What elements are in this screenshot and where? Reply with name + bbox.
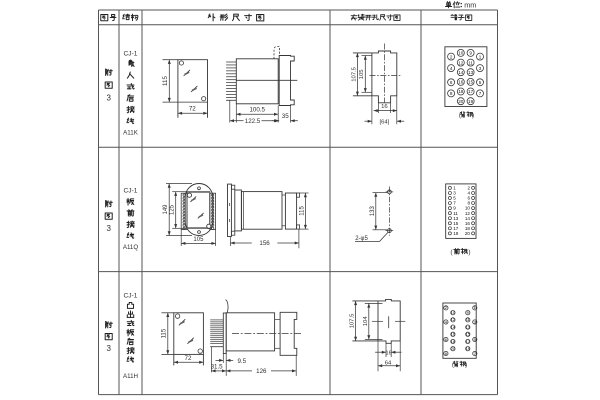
svg-text:19: 19 (453, 231, 459, 236)
svg-text:9: 9 (469, 51, 472, 56)
svg-text:12: 12 (451, 317, 456, 322)
svg-text:3: 3 (106, 93, 111, 102)
svg-text:17: 17 (466, 339, 471, 344)
svg-text:A11H: A11H (123, 373, 138, 380)
svg-text:[64]: [64] (379, 119, 389, 125)
svg-text:18: 18 (451, 339, 456, 344)
svg-text:149: 149 (163, 204, 169, 215)
svg-text:15: 15 (466, 332, 471, 337)
svg-text:20: 20 (465, 231, 471, 236)
svg-text:3: 3 (106, 344, 111, 353)
svg-text:125: 125 (170, 204, 176, 215)
svg-text:1: 1 (479, 54, 482, 59)
svg-text:8: 8 (450, 91, 453, 96)
svg-text:115: 115 (299, 206, 305, 216)
svg-text:CJ-1: CJ-1 (124, 50, 138, 57)
svg-text:100.5: 100.5 (249, 107, 265, 114)
svg-text:mm: mm (464, 1, 476, 10)
svg-text:115: 115 (161, 328, 168, 338)
svg-text:6: 6 (450, 80, 453, 85)
svg-text:122.5: 122.5 (245, 118, 261, 125)
svg-text:20: 20 (458, 99, 464, 104)
svg-text:72: 72 (185, 355, 192, 362)
svg-text:11: 11 (468, 60, 473, 65)
svg-text:107.5: 107.5 (351, 66, 357, 81)
svg-text:14: 14 (458, 70, 464, 75)
svg-text:19: 19 (466, 346, 471, 351)
svg-text:12: 12 (458, 60, 464, 65)
svg-text:2: 2 (450, 54, 453, 59)
svg-text:CJ-1: CJ-1 (124, 292, 138, 299)
svg-text:133: 133 (370, 206, 376, 217)
svg-text:16: 16 (381, 104, 388, 110)
svg-text:(: ( (450, 249, 453, 256)
svg-text:105: 105 (193, 237, 204, 243)
svg-text:31.5: 31.5 (211, 363, 224, 370)
svg-text:19: 19 (468, 99, 474, 104)
svg-text:16: 16 (458, 80, 464, 85)
svg-text:10: 10 (451, 310, 456, 315)
svg-text:A11K: A11K (123, 129, 139, 136)
svg-text:10: 10 (458, 51, 464, 56)
svg-text:17: 17 (468, 89, 474, 94)
svg-text:CJ-1: CJ-1 (124, 187, 138, 194)
svg-text:): ) (468, 249, 470, 256)
svg-text:104: 104 (363, 316, 369, 327)
svg-text:13: 13 (468, 70, 474, 75)
svg-text:156: 156 (259, 240, 270, 247)
svg-text:105: 105 (359, 69, 365, 80)
svg-text:35: 35 (282, 113, 289, 120)
svg-text:5: 5 (479, 80, 482, 85)
svg-text:7: 7 (479, 91, 482, 96)
svg-text:15: 15 (468, 80, 474, 85)
svg-text:107.5: 107.5 (350, 313, 356, 328)
svg-text:A11Q: A11Q (123, 244, 139, 251)
svg-text:16: 16 (451, 332, 456, 337)
svg-text:3: 3 (479, 66, 482, 71)
svg-text:115: 115 (162, 76, 169, 86)
svg-text:3: 3 (106, 224, 111, 233)
svg-text:9.5: 9.5 (237, 358, 246, 365)
svg-text:72: 72 (189, 106, 196, 113)
svg-text:4: 4 (450, 66, 453, 71)
svg-text:20: 20 (451, 346, 456, 351)
svg-text:18: 18 (458, 89, 464, 94)
svg-text:13: 13 (466, 324, 471, 329)
svg-text:16: 16 (386, 350, 392, 356)
svg-text:14: 14 (451, 324, 456, 329)
svg-text:126: 126 (256, 368, 267, 375)
